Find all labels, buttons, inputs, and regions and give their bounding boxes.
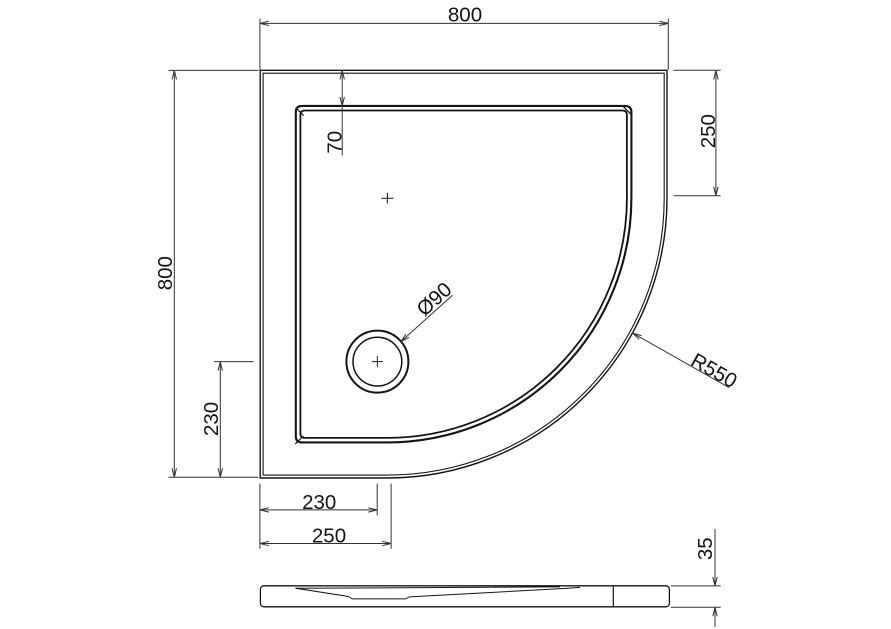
svg-text:250: 250 (697, 114, 720, 148)
svg-text:35: 35 (694, 537, 717, 560)
svg-text:800: 800 (448, 4, 482, 27)
svg-text:800: 800 (154, 256, 177, 290)
svg-text:70: 70 (323, 131, 346, 154)
svg-text:250: 250 (312, 525, 346, 548)
svg-text:230: 230 (200, 402, 223, 436)
svg-text:230: 230 (302, 491, 336, 514)
